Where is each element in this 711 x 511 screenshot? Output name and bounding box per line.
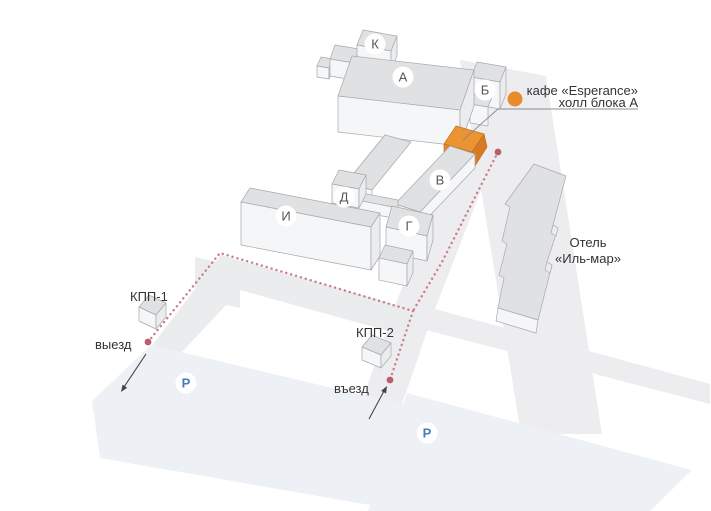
waypoint-exit-dot: [145, 339, 152, 346]
badge-letter: А: [399, 70, 408, 85]
badge-building-a: А: [393, 67, 414, 88]
waypoint-cafe-dot: [495, 149, 502, 156]
badge-building-i: И: [276, 206, 297, 227]
badge-letter: Б: [481, 83, 490, 98]
parking-icon-west: P: [176, 373, 197, 394]
badge-building-b: Б: [475, 80, 496, 101]
badge-letter: К: [371, 37, 379, 52]
badge-building-k: К: [365, 34, 386, 55]
badge-building-v: В: [430, 170, 451, 191]
badge-letter: В: [436, 173, 445, 188]
entrance-label: въезд: [334, 381, 369, 396]
building-g-annex: [379, 245, 413, 286]
badge-letter: Д: [340, 190, 349, 205]
hotel-label-line1: Отель: [569, 235, 606, 250]
kpp1-label: КПП-1: [130, 289, 168, 304]
badge-letter: Г: [405, 219, 412, 234]
campus-map-svg: кафе «Esperance» холл блока А КПП-1 выез…: [0, 0, 711, 511]
badge-letter: И: [281, 209, 290, 224]
badge-building-d: Д: [334, 187, 355, 208]
hotel-label-line2: «Иль-мар»: [555, 251, 621, 266]
parking-letter: P: [182, 376, 191, 391]
badge-building-g: Г: [399, 216, 420, 237]
front-face: [317, 66, 329, 79]
parking-letter: P: [423, 426, 432, 441]
waypoint-entrance-dot: [387, 377, 394, 384]
kpp2-label: КПП-2: [356, 325, 394, 340]
exit-label: выезд: [95, 337, 132, 352]
cafe-label-line2: холл блока А: [559, 95, 639, 110]
campus-map: кафе «Esperance» холл блока А КПП-1 выез…: [0, 0, 711, 511]
parking-icon-south: P: [417, 423, 438, 444]
cafe-legend-dot: [508, 92, 523, 107]
